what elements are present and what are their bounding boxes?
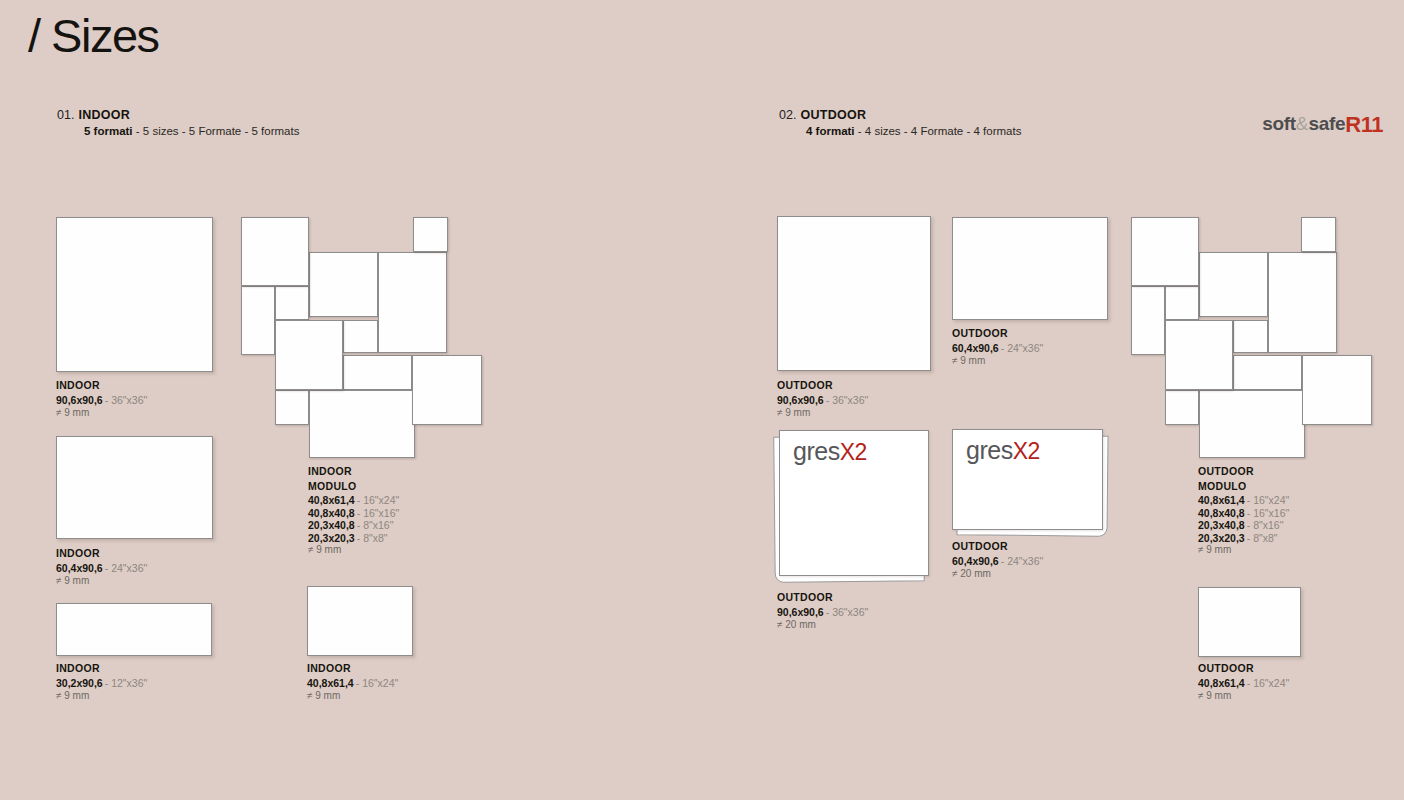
tile-outdoor-90x90-gres-x2: gresX2	[779, 430, 929, 576]
gres-logo: gres	[966, 436, 1013, 464]
label-size-line: 40,8x40,8- 16"x16"	[1198, 508, 1289, 519]
label-category: INDOOR	[308, 466, 399, 477]
label-category: OUTDOOR	[952, 541, 1043, 552]
size-cm: 20,3x40,8	[1198, 519, 1245, 531]
gres-logo: gres	[793, 437, 840, 465]
label-outdoor-90x90-x2: OUTDOOR 90,6x90,6- 36"x36" ≠ 20 mm	[777, 592, 868, 630]
size-cm: 20,3x40,8	[308, 519, 355, 531]
label-category: OUTDOOR	[777, 380, 868, 391]
size-cm: 40,8x61,4	[307, 677, 354, 689]
label-size-line: 20,3x20,3- 8"x8"	[1198, 533, 1289, 544]
size-cm: 60,4x90,6	[56, 562, 103, 574]
modulo-tile-40x20	[1233, 355, 1302, 390]
label-category: OUTDOOR	[1198, 663, 1289, 674]
size-cm: 60,4x90,6	[952, 555, 999, 567]
modulo-tile-20x20	[1233, 320, 1268, 353]
label-size-line: 20,3x40,8- 8"x16"	[308, 520, 399, 531]
label-size-line: 20,3x20,3- 8"x8"	[308, 533, 399, 544]
tile-indoor-90x90	[56, 217, 213, 372]
size-inches: - 36"x36"	[105, 394, 147, 406]
label-size-line: 30,2x90,6- 12"x36"	[56, 678, 147, 689]
size-cm: 90,6x90,6	[777, 394, 824, 406]
section-number: 01.	[57, 108, 74, 122]
label-indoor-90x90: INDOOR 90,6x90,6- 36"x36" ≠ 9 mm	[56, 380, 147, 418]
tile-face: gresX2	[779, 430, 929, 576]
modulo-tile-40x40	[241, 217, 309, 286]
label-outdoor-modulo: OUTDOOR MODULO 40,8x61,4- 16"x24" 40,8x4…	[1198, 466, 1289, 555]
modulo-tile-20x20	[413, 217, 448, 252]
label-size-line: 90,6x90,6- 36"x36"	[777, 395, 868, 406]
label-indoor-modulo: INDOOR MODULO 40,8x61,4- 16"x24" 40,8x40…	[308, 466, 399, 555]
size-inches: - 24"x36"	[105, 562, 147, 574]
tile-indoor-60x90	[56, 436, 213, 539]
label-thickness: ≠ 9 mm	[56, 691, 147, 701]
section-formats: 5 formati - 5 sizes - 5 Formate - 5 form…	[84, 125, 299, 138]
brand-r11-rating: R11	[1345, 112, 1383, 137]
tile-indoor-30x90	[56, 603, 212, 656]
catalog-page: / Sizes 01.INDOOR 5 formati - 5 sizes - …	[0, 0, 1404, 800]
size-inches: - 16"x16"	[1247, 507, 1289, 519]
size-inches: - 24"x36"	[1001, 342, 1043, 354]
brand-safe: safe	[1309, 113, 1346, 134]
label-size-line: 40,8x61,4- 16"x24"	[307, 678, 398, 689]
label-category: INDOOR	[56, 548, 147, 559]
modulo-tile-61x40	[1199, 390, 1305, 458]
size-inches: - 36"x36"	[826, 394, 868, 406]
modulo-tile-40x40	[1165, 320, 1233, 390]
label-thickness: ≠ 9 mm	[777, 408, 868, 418]
label-outdoor-60x90: OUTDOOR 60,4x90,6- 24"x36" ≠ 9 mm	[952, 328, 1043, 366]
size-cm: 20,3x20,3	[1198, 532, 1245, 544]
label-outdoor-40x61: OUTDOOR 40,8x61,4- 16"x24" ≠ 9 mm	[1198, 663, 1289, 701]
label-category: INDOOR	[56, 663, 147, 674]
formats-count: 4 formati	[806, 125, 855, 137]
modulo-tile-40x40	[309, 252, 378, 317]
label-indoor-40x61: INDOOR 40,8x61,4- 16"x24" ≠ 9 mm	[307, 663, 398, 701]
size-cm: 40,8x61,4	[308, 494, 355, 506]
modulo-tile-20x40	[1131, 286, 1165, 355]
label-thickness: ≠ 9 mm	[56, 408, 147, 418]
label-size-line: 90,6x90,6- 36"x36"	[777, 607, 868, 618]
tile-outdoor-60x90	[952, 217, 1108, 320]
section-number: 02.	[779, 108, 796, 122]
modulo-tile-40x40	[412, 355, 482, 425]
size-cm: 90,6x90,6	[56, 394, 103, 406]
section-header-outdoor: 02.OUTDOOR 4 formati - 4 sizes - 4 Forma…	[779, 108, 1021, 139]
size-cm: 20,3x20,3	[308, 532, 355, 544]
gres-x2-logo: X2	[1013, 438, 1040, 464]
modulo-tile-40x61	[1268, 252, 1337, 353]
label-thickness: ≠ 9 mm	[56, 576, 147, 586]
size-inches: - 36"x36"	[826, 606, 868, 618]
label-indoor-30x90: INDOOR 30,2x90,6- 12"x36" ≠ 9 mm	[56, 663, 147, 701]
label-size-line: 60,4x90,6- 24"x36"	[952, 556, 1043, 567]
brand-logo: soft&safeR11	[1262, 112, 1383, 134]
label-size-line: 20,3x40,8- 8"x16"	[1198, 520, 1289, 531]
modulo-tile-20x20	[343, 320, 378, 353]
section-title: 01.INDOOR	[57, 108, 299, 122]
size-inches: - 16"x24"	[356, 677, 398, 689]
modulo-tile-40x40	[1131, 217, 1199, 286]
label-indoor-60x90: INDOOR 60,4x90,6- 24"x36" ≠ 9 mm	[56, 548, 147, 586]
modulo-tile-40x61	[378, 252, 447, 353]
label-size-line: 40,8x61,4- 16"x24"	[1198, 678, 1289, 689]
label-size-line: 90,6x90,6- 36"x36"	[56, 395, 147, 406]
modulo-tile-61x40	[309, 390, 415, 458]
formats-translations: - 4 sizes - 4 Formate - 4 formats	[858, 125, 1022, 137]
size-cm: 40,8x40,8	[308, 507, 355, 519]
label-outdoor-60x90-x2: OUTDOOR 60,4x90,6- 24"x36" ≠ 20 mm	[952, 541, 1043, 579]
modulo-tile-20x20	[1165, 286, 1199, 320]
formats-translations: - 5 sizes - 5 Formate - 5 formats	[136, 125, 300, 137]
label-thickness: ≠ 9 mm	[1198, 545, 1289, 555]
section-name: INDOOR	[78, 108, 130, 122]
modulo-tile-40x40	[1302, 355, 1372, 425]
size-inches: - 12"x36"	[105, 677, 147, 689]
brand-ampersand: &	[1296, 113, 1309, 134]
size-cm: 40,8x61,4	[1198, 494, 1245, 506]
label-modulo-title: MODULO	[308, 481, 399, 492]
label-category: OUTDOOR	[777, 592, 868, 603]
label-modulo-title: MODULO	[1198, 481, 1289, 492]
label-size-line: 60,4x90,6- 24"x36"	[952, 343, 1043, 354]
tile-outdoor-40x61	[1198, 587, 1301, 657]
size-inches: - 8"x8"	[1247, 532, 1278, 544]
size-inches: - 8"x8"	[357, 532, 388, 544]
label-category: OUTDOOR	[1198, 466, 1289, 477]
tile-indoor-40x61	[307, 586, 413, 656]
modulo-tile-40x40	[1199, 252, 1268, 317]
size-inches: - 24"x36"	[1001, 555, 1043, 567]
size-inches: - 8"x16"	[357, 519, 394, 531]
size-cm: 40,8x61,4	[1198, 677, 1245, 689]
section-formats: 4 formati - 4 sizes - 4 Formate - 4 form…	[806, 125, 1021, 138]
modulo-tile-20x20	[1301, 217, 1336, 252]
label-outdoor-90x90: OUTDOOR 90,6x90,6- 36"x36" ≠ 9 mm	[777, 380, 868, 418]
size-cm: 40,8x40,8	[1198, 507, 1245, 519]
modulo-tile-40x20	[343, 355, 412, 390]
label-category: INDOOR	[307, 663, 398, 674]
page-title: / Sizes	[28, 8, 159, 63]
size-inches: - 16"x24"	[1247, 677, 1289, 689]
section-name: OUTDOOR	[800, 108, 866, 122]
gres-x2-logo: X2	[840, 439, 867, 465]
modulo-tile-20x40	[241, 286, 275, 355]
modulo-tile-40x40	[275, 320, 343, 390]
label-category: OUTDOOR	[952, 328, 1043, 339]
size-cm: 90,6x90,6	[777, 606, 824, 618]
size-inches: - 16"x16"	[357, 507, 399, 519]
section-title: 02.OUTDOOR	[779, 108, 1021, 122]
label-thickness: ≠ 9 mm	[952, 356, 1043, 366]
tile-face: gresX2	[952, 429, 1103, 530]
section-header-indoor: 01.INDOOR 5 formati - 5 sizes - 5 Format…	[57, 108, 299, 139]
tile-outdoor-60x90-gres-x2: gresX2	[952, 429, 1103, 530]
modulo-tile-20x20	[1165, 390, 1199, 425]
size-cm: 30,2x90,6	[56, 677, 103, 689]
label-size-line: 40,8x40,8- 16"x16"	[308, 508, 399, 519]
size-cm: 60,4x90,6	[952, 342, 999, 354]
size-inches: - 8"x16"	[1247, 519, 1284, 531]
size-inches: - 16"x24"	[1247, 494, 1289, 506]
label-thickness: ≠ 20 mm	[777, 620, 868, 630]
label-thickness: ≠ 20 mm	[952, 569, 1043, 579]
label-size-line: 40,8x61,4- 16"x24"	[308, 495, 399, 506]
label-size-line: 40,8x61,4- 16"x24"	[1198, 495, 1289, 506]
tile-outdoor-90x90	[777, 216, 931, 371]
brand-soft: soft	[1262, 113, 1296, 134]
label-thickness: ≠ 9 mm	[308, 545, 399, 555]
label-thickness: ≠ 9 mm	[1198, 691, 1289, 701]
size-inches: - 16"x24"	[357, 494, 399, 506]
modulo-tile-20x20	[275, 390, 309, 425]
formats-count: 5 formati	[84, 125, 133, 137]
modulo-tile-20x20	[275, 286, 309, 320]
label-size-line: 60,4x90,6- 24"x36"	[56, 563, 147, 574]
label-category: INDOOR	[56, 380, 147, 391]
label-thickness: ≠ 9 mm	[307, 691, 398, 701]
